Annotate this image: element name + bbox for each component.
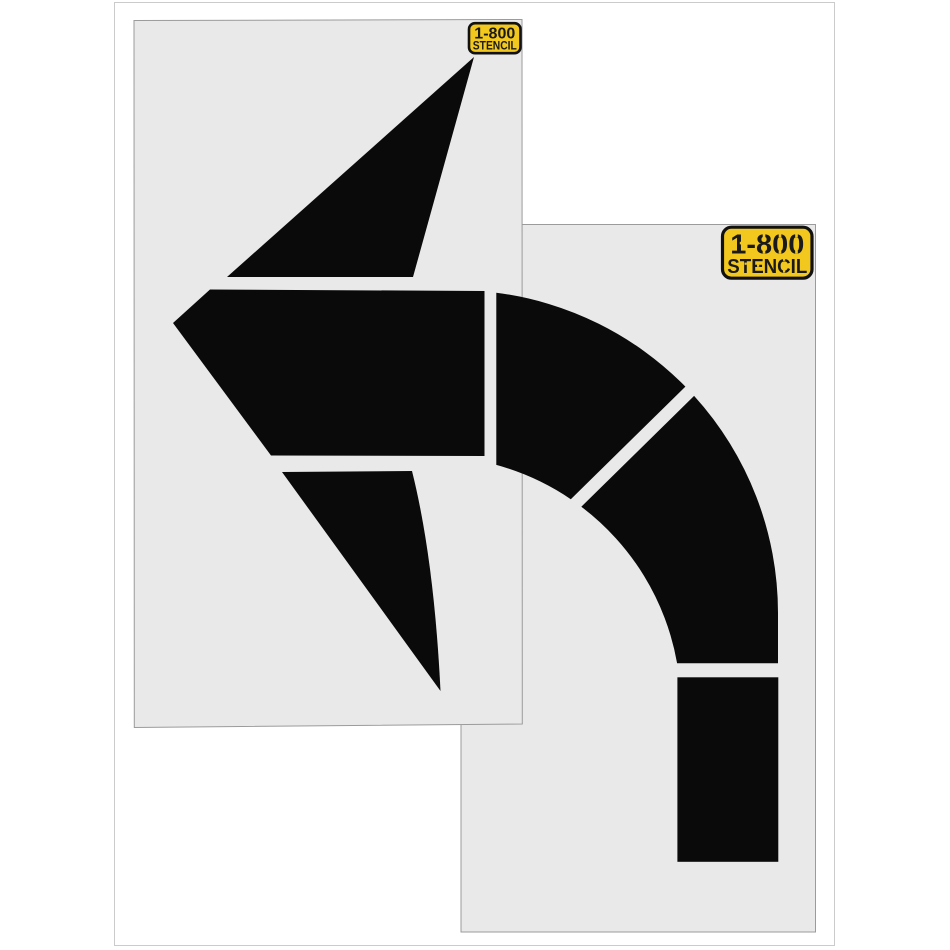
svg-text:STENCIL: STENCIL	[473, 41, 517, 53]
svg-text:STENCIL: STENCIL	[727, 256, 807, 278]
